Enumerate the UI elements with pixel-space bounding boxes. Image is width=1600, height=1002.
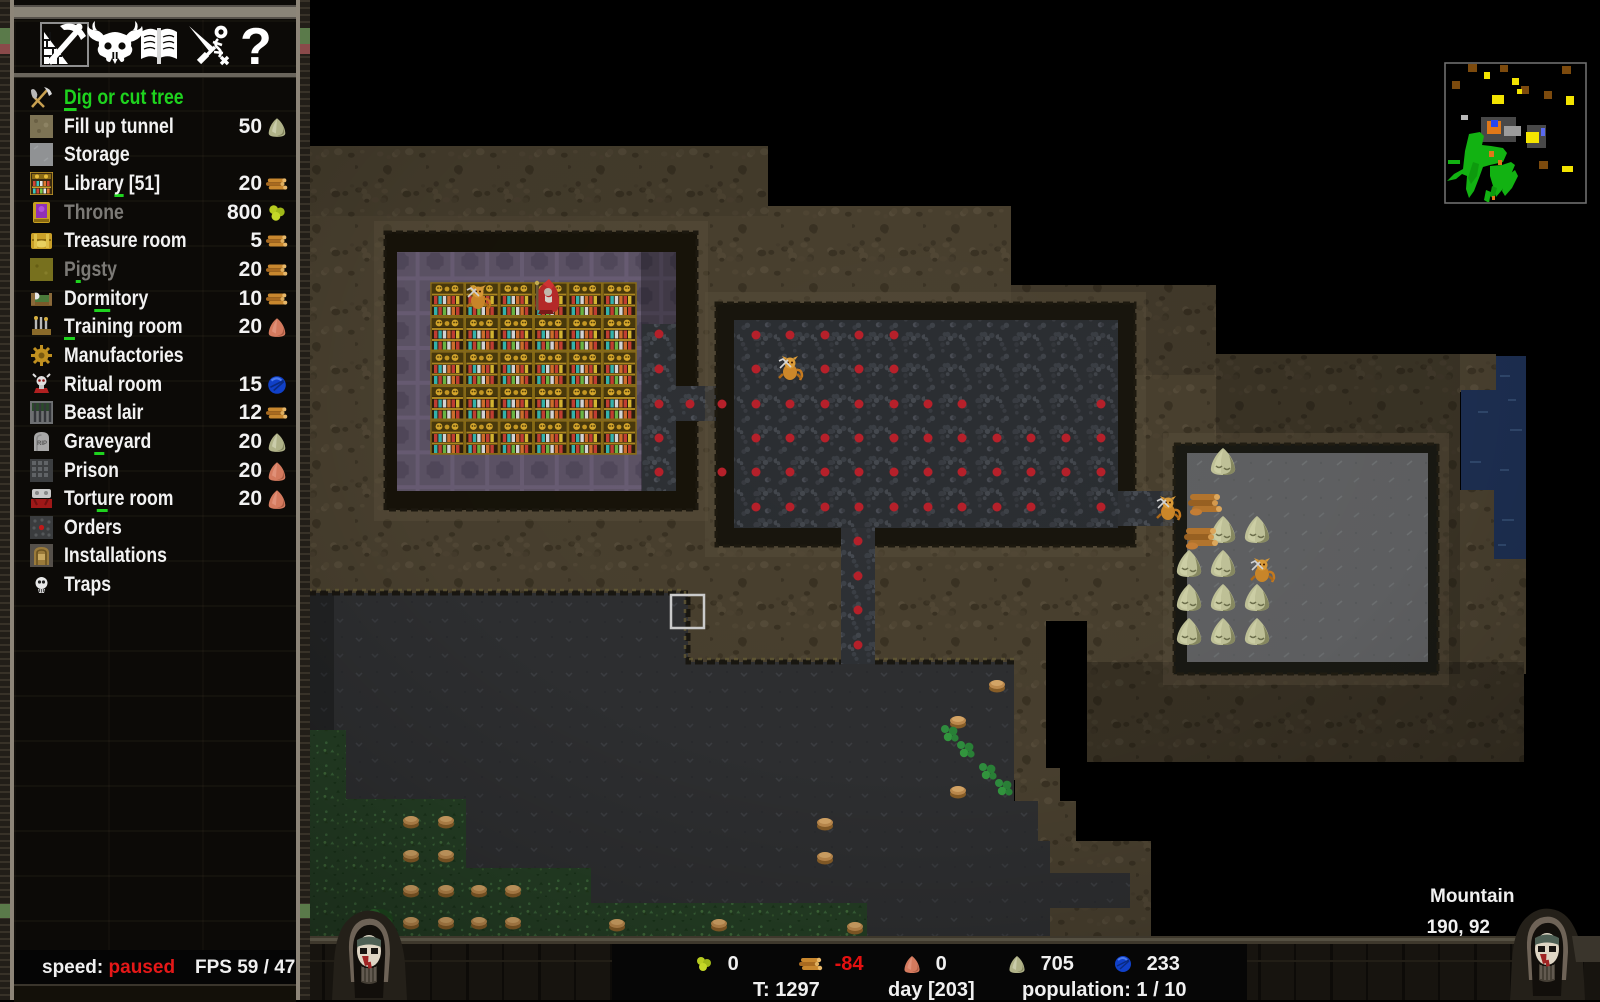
svg-text:?: ? xyxy=(240,18,272,76)
svg-text:RIP: RIP xyxy=(37,441,47,447)
